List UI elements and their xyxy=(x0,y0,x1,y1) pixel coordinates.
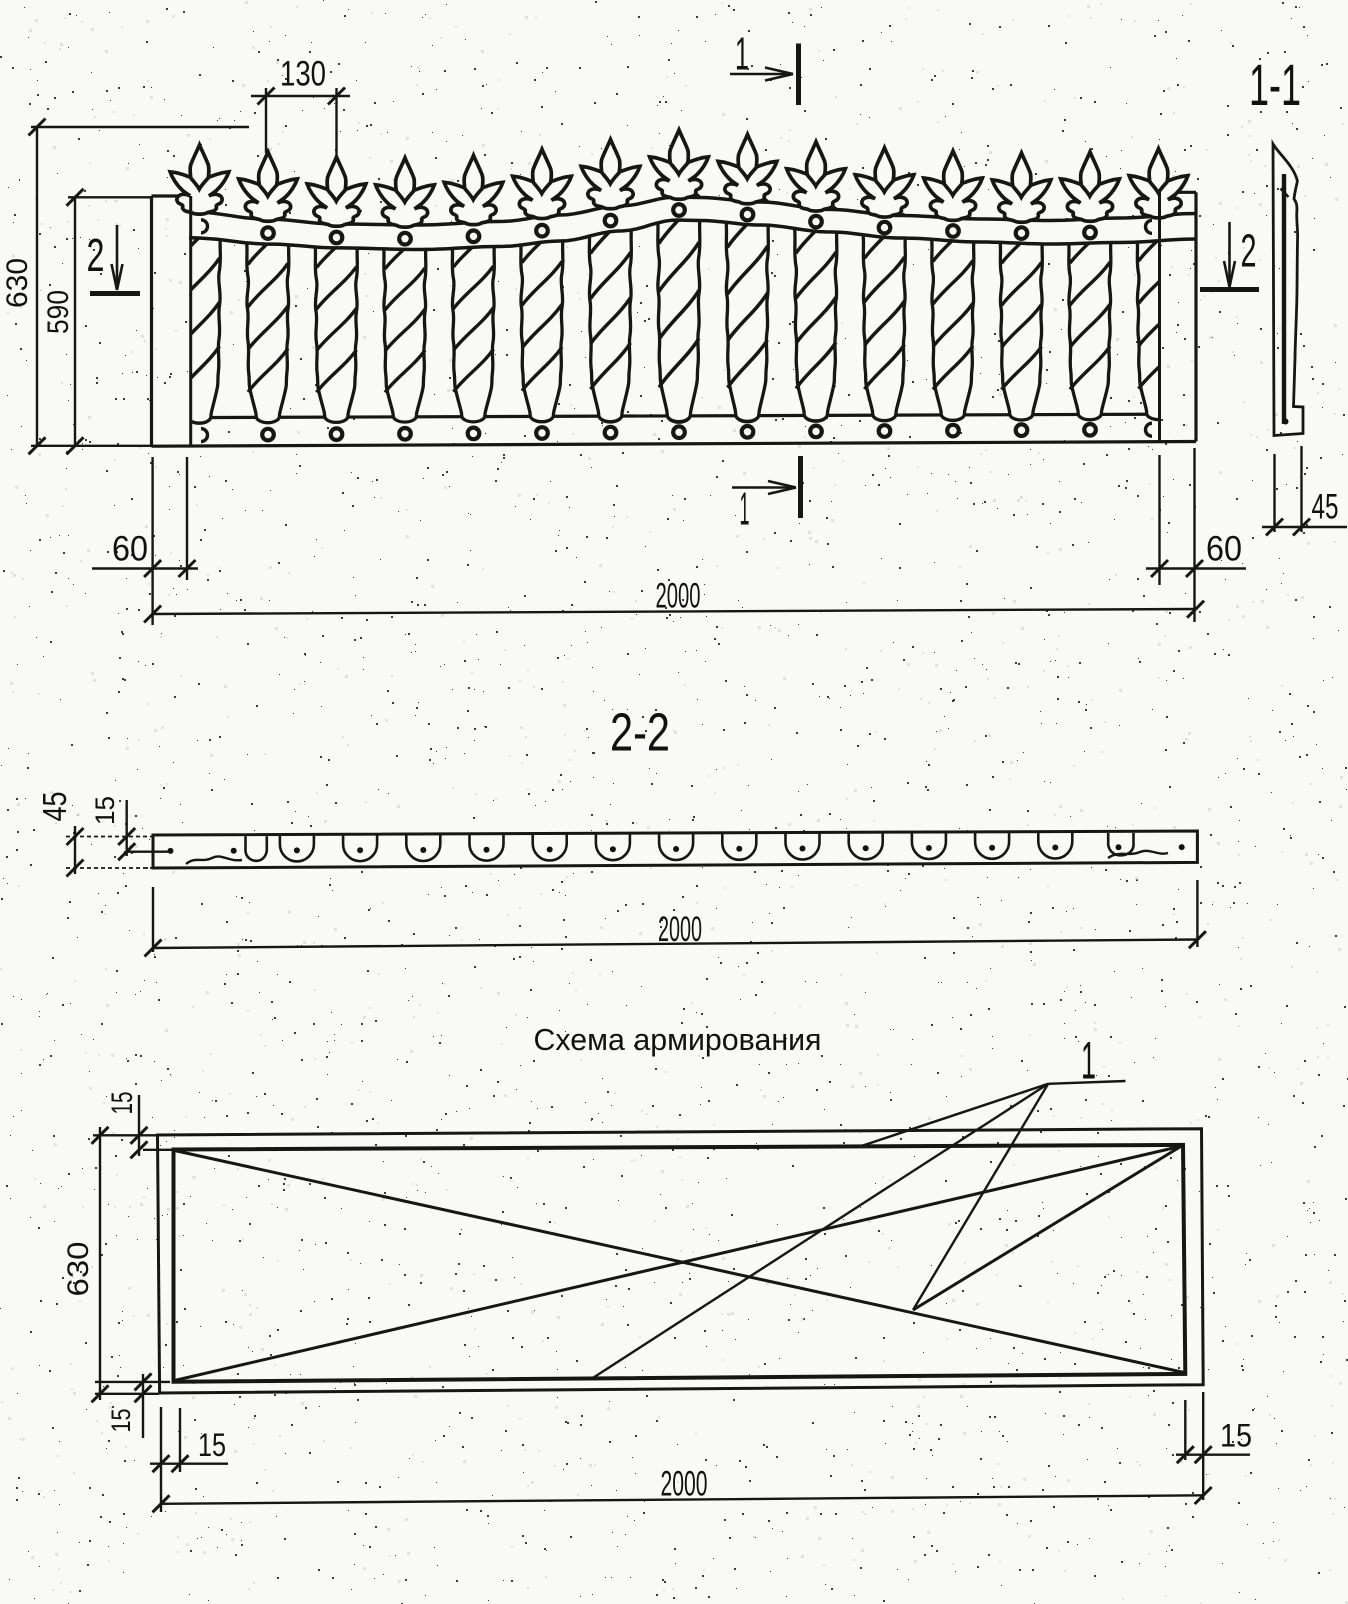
svg-text:15: 15 xyxy=(1220,1418,1252,1454)
svg-text:15: 15 xyxy=(106,1409,136,1433)
svg-text:60: 60 xyxy=(1206,529,1242,568)
svg-text:130: 130 xyxy=(280,54,326,93)
svg-text:2000: 2000 xyxy=(658,910,702,949)
svg-text:2-2: 2-2 xyxy=(610,703,670,763)
svg-text:630: 630 xyxy=(1,258,34,308)
svg-text:45: 45 xyxy=(1312,487,1339,526)
svg-text:1-1: 1-1 xyxy=(1249,53,1301,118)
svg-text:60: 60 xyxy=(112,529,148,568)
svg-text:2000: 2000 xyxy=(661,1464,708,1503)
svg-text:15: 15 xyxy=(198,1427,226,1463)
svg-text:15: 15 xyxy=(90,796,120,825)
svg-text:1: 1 xyxy=(1081,1031,1096,1090)
svg-text:Схема армирования: Схема армирования xyxy=(534,1022,822,1057)
svg-text:15: 15 xyxy=(106,1092,139,1115)
svg-text:2000: 2000 xyxy=(656,576,701,615)
svg-text:45: 45 xyxy=(36,792,73,822)
svg-text:590: 590 xyxy=(42,290,75,334)
svg-text:2: 2 xyxy=(1241,224,1257,276)
svg-text:1: 1 xyxy=(735,27,749,79)
svg-text:1: 1 xyxy=(740,482,750,534)
svg-text:2: 2 xyxy=(87,229,105,281)
svg-text:630: 630 xyxy=(62,1242,95,1297)
